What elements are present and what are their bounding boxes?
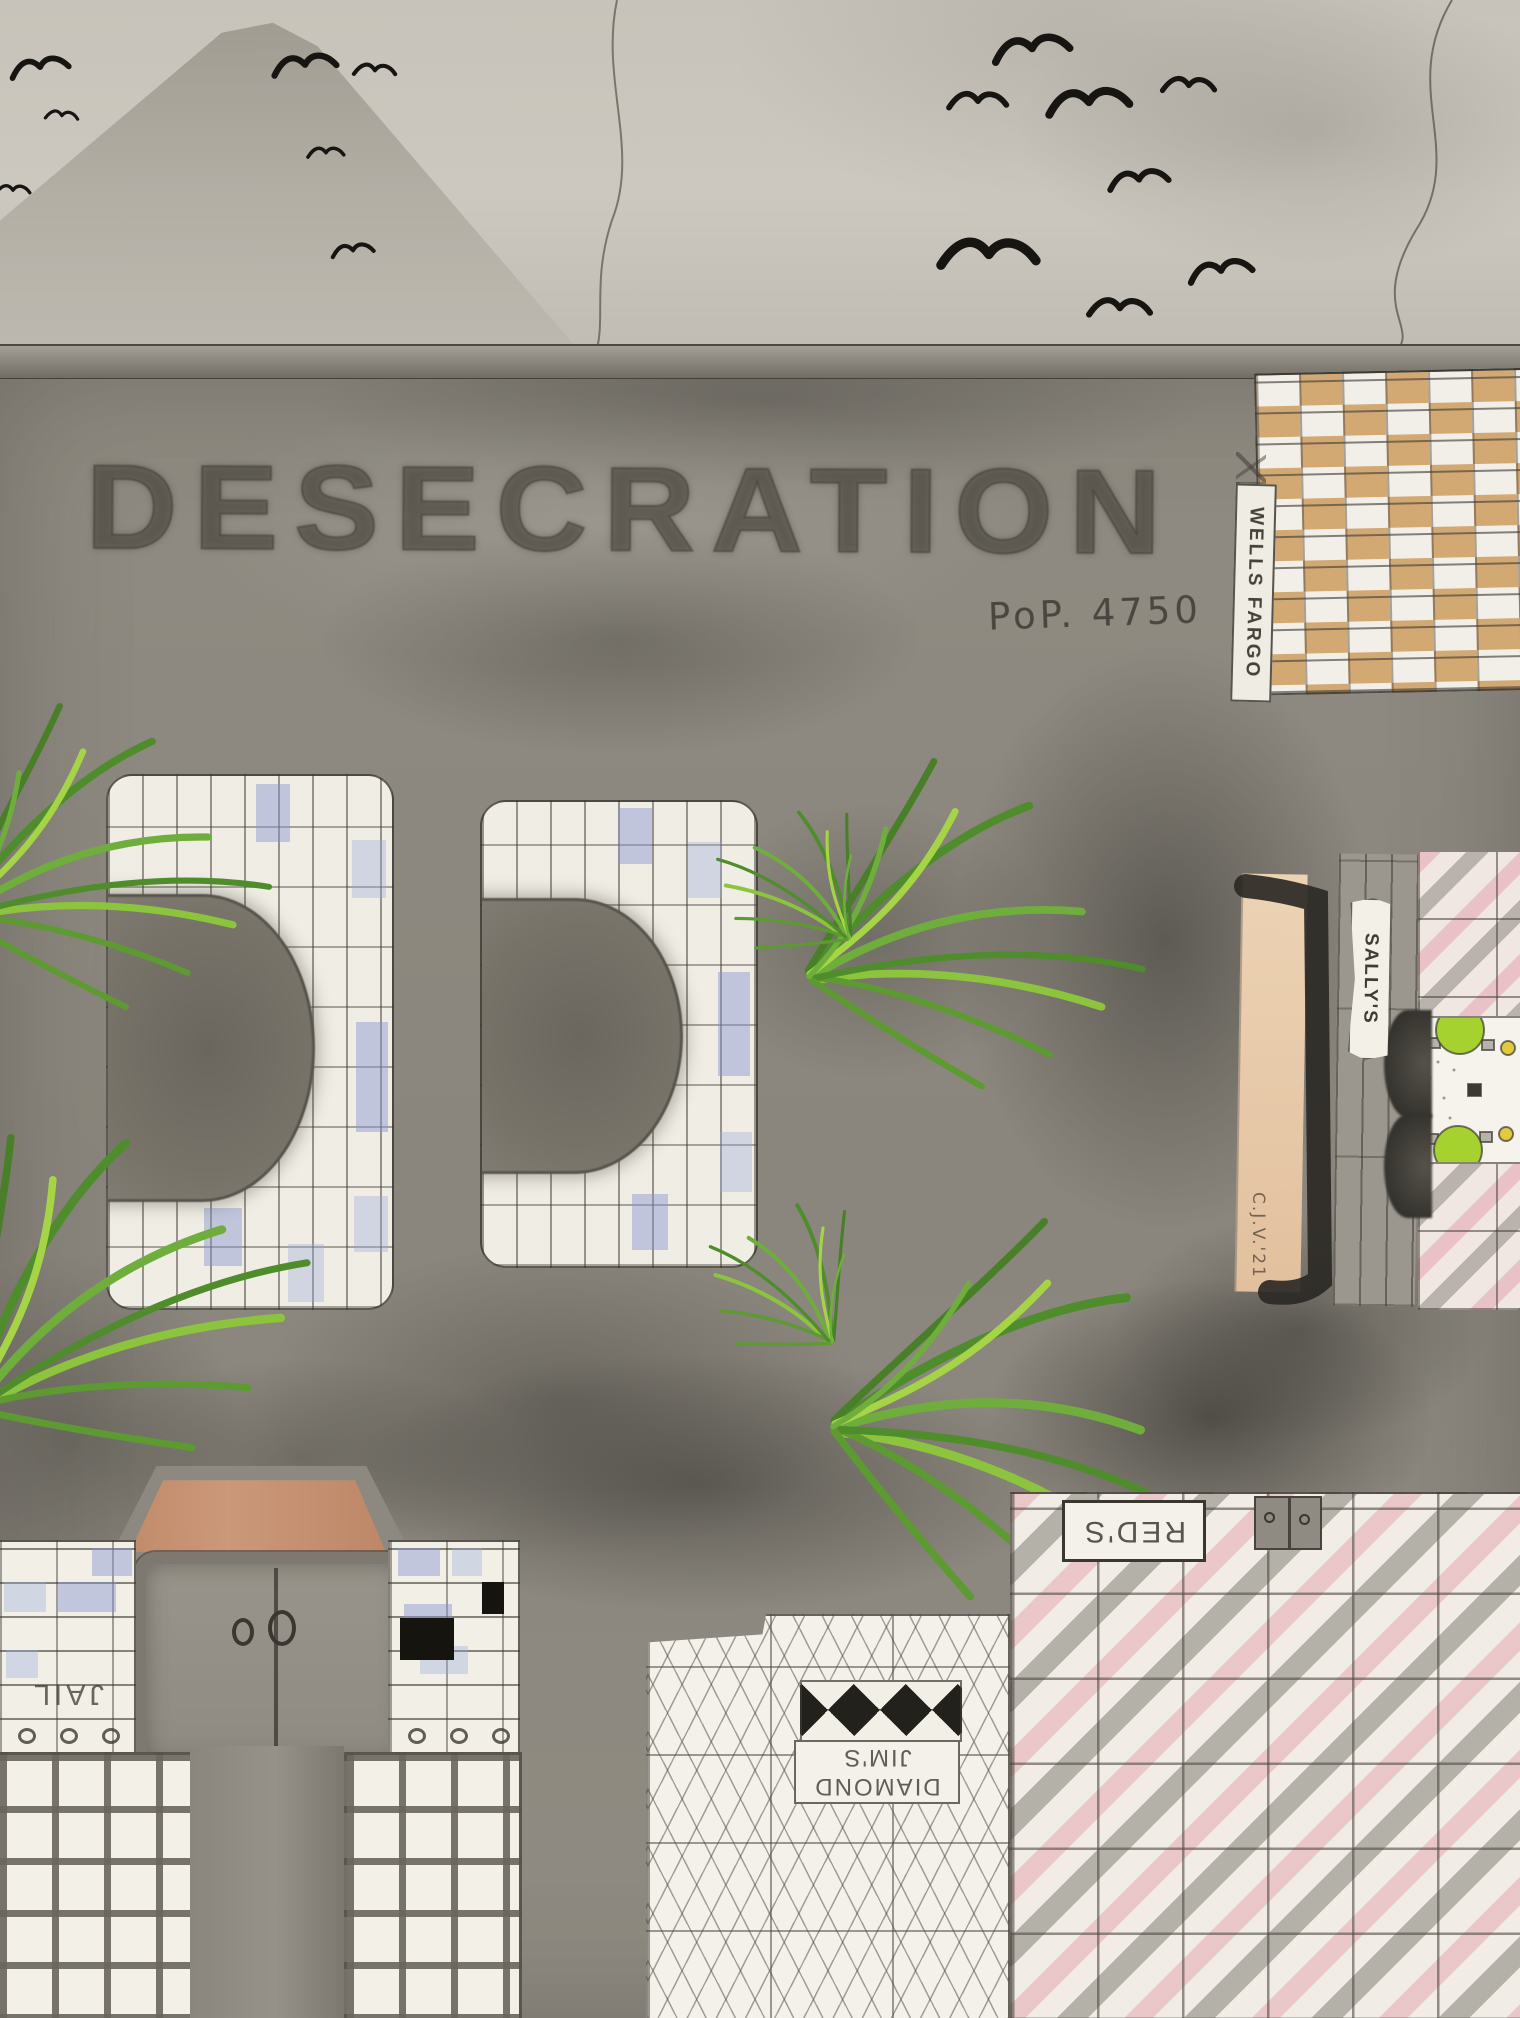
wells-fargo-sign-label: WELLS FARGO [1240,507,1267,680]
bird-icon [43,104,81,127]
building-diamond-jims: DIAMOND JIM'S [646,1614,1010,2018]
bird-icon [1159,68,1219,102]
sallys-entrance-arch [1384,1114,1432,1218]
sallys-entrance-arch [1384,1010,1432,1118]
reds-sign-label: RED'S [1082,1514,1186,1548]
plant-icon [0,1106,328,1480]
drawing-aerial-town-view: DESECRATION PoP. 4750 WELLS FARGO [0,0,1520,2018]
blue-tile [4,1582,46,1612]
diamond-jims-sign: DIAMOND JIM'S [794,1740,960,1804]
plant-icon [699,788,875,972]
jail-walkway [190,1746,344,2018]
blue-tile [718,972,750,1076]
bird-icon [1184,248,1257,290]
blue-tile [632,1194,668,1250]
door-handle-icon [268,1610,296,1646]
bird-icon [1105,160,1173,198]
diamond-checker-band [800,1680,962,1742]
reds-sign: RED'S [1062,1500,1206,1562]
building-reds: RED'S [1010,1492,1520,2018]
black-tile [400,1618,454,1660]
bird-icon [269,44,341,84]
bird-icon [0,179,33,201]
black-tile [482,1582,504,1614]
blue-tile [58,1582,116,1612]
building-jail: JAIL [0,1456,516,2018]
population-label: PoP. 4750 [987,588,1202,638]
blue-tile [618,808,652,864]
bird-icon [945,82,1011,117]
jail-cell-skylight-grid [344,1752,522,2018]
hatch-split-line [1288,1498,1291,1548]
jail-wall-east [388,1540,520,1756]
jail-vent-dots [408,1728,510,1744]
blue-tile [398,1548,440,1576]
jail-vent-dots [18,1728,120,1744]
door-split-line [274,1568,278,1756]
blue-tile [356,1022,388,1132]
artist-signature: C.J.V.'21 [1242,1174,1274,1296]
building-sallys: SALLY'S C.J.V.'21 [1186,846,1520,1310]
stagecoach-doodle-icon [1236,452,1266,484]
bird-icon [306,141,347,162]
bird-icon [7,47,74,86]
building-wells-fargo [1254,368,1520,696]
bird-icon [1043,76,1135,124]
jail-sign-label: JAIL [0,1677,134,1710]
bird-icon [329,237,376,262]
sky [0,0,1520,352]
jail-doors [134,1552,414,1772]
jail-wall-west: JAIL [0,1540,136,1756]
town-title: DESECRATION [85,438,1177,581]
blue-tile [6,1650,38,1678]
blue-tile [352,840,386,898]
bird-icon [935,223,1044,281]
bird-icon [988,22,1075,71]
jail-cell-skylight-grid [0,1752,193,2018]
blue-tile [92,1548,132,1576]
sallys-sign-label: SALLY'S [1358,933,1382,1025]
hatch-bolt [1299,1514,1310,1525]
roof-hatch [1254,1496,1322,1550]
bird-icon [351,56,399,84]
hatch-bolt [1264,1512,1275,1523]
wells-fargo-sign: WELLS FARGO [1230,484,1277,703]
courtyard-opening [480,898,683,1174]
bird-icon [1085,288,1155,327]
door-handle-icon [232,1618,254,1646]
blue-tile [452,1548,482,1576]
blue-tile [354,1196,388,1252]
